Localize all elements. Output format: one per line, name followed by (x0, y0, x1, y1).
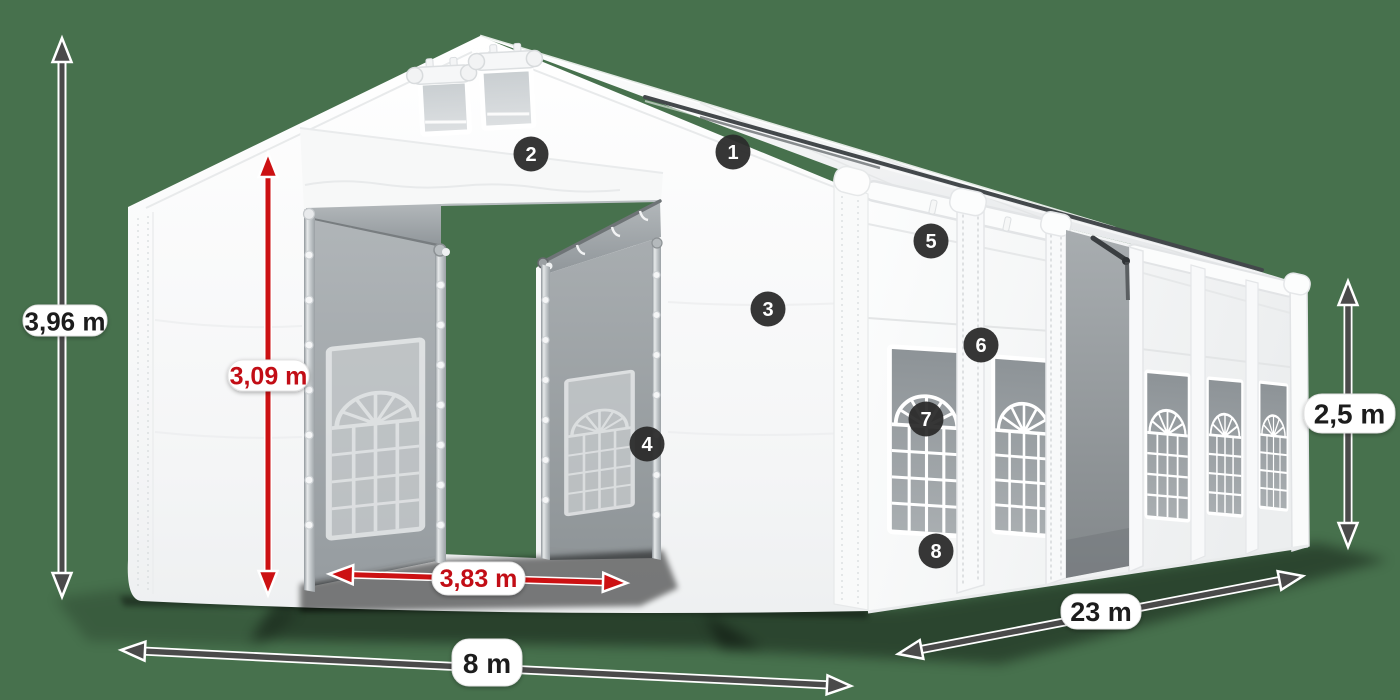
hotspot-badge-3[interactable]: 3 (751, 292, 786, 327)
arrow-left-icon (121, 641, 146, 661)
badge-number: 4 (641, 434, 653, 456)
hotspot-badge-2[interactable]: 2 (514, 137, 549, 172)
front-left-pole (304, 211, 315, 592)
badge-number: 2 (525, 144, 536, 166)
arrow-up-icon (53, 38, 72, 62)
arrow-right-icon (827, 675, 852, 695)
middle-right-pole (541, 264, 550, 560)
dim-label-total-width: 8 m (452, 639, 522, 686)
hotspot-badge-7[interactable]: 7 (909, 402, 944, 437)
badge-number: 5 (925, 231, 936, 253)
badge-number: 7 (920, 409, 931, 431)
curtain-window (566, 371, 632, 515)
arrow-down-icon (53, 573, 72, 597)
dim-label-side-height: 2,5 m (1304, 394, 1395, 433)
dim-side-height: 2,5 m (1304, 281, 1395, 547)
svg-text:3,09 m: 3,09 m (230, 363, 308, 391)
svg-text:23 m: 23 m (1070, 597, 1132, 627)
dim-label-entrance-width: 3,83 m (432, 562, 525, 595)
side-window (889, 347, 963, 537)
arrow-up-icon (1339, 281, 1358, 305)
right-portal (538, 201, 661, 560)
svg-text:8 m: 8 m (463, 648, 511, 679)
hotspot-badge-8[interactable]: 8 (919, 534, 954, 569)
hotspot-badge-5[interactable]: 5 (914, 224, 949, 259)
badge-number: 3 (762, 299, 773, 321)
hotspot-badge-1[interactable]: 1 (716, 135, 751, 170)
svg-text:3,96 m: 3,96 m (25, 307, 106, 337)
dim-label-total-height: 3,96 m (23, 305, 107, 337)
side-window (1208, 378, 1243, 516)
side-window (1260, 382, 1288, 510)
svg-text:2,5 m: 2,5 m (1314, 399, 1386, 430)
front-right-corner-band (831, 164, 872, 610)
front-entrance (300, 201, 678, 612)
svg-text:3,83 m: 3,83 m (440, 565, 518, 593)
badge-number: 8 (930, 541, 941, 563)
hotspot-badge-6[interactable]: 6 (964, 328, 999, 363)
side-window (1146, 371, 1189, 521)
left-portal (306, 204, 441, 586)
dim-label-total-length: 23 m (1061, 594, 1141, 629)
dim-label-entrance-height: 3,09 m (228, 360, 309, 391)
tent-dimension-diagram: 1 2 3 4 5 6 7 8 (0, 0, 1400, 700)
hotspot-badge-4[interactable]: 4 (630, 427, 665, 462)
badge-number: 1 (727, 142, 738, 164)
badge-number: 6 (975, 335, 986, 357)
curtain-window (329, 340, 422, 539)
arrow-down-icon (1339, 523, 1358, 547)
dim-total-height: 3,96 m (23, 38, 107, 597)
side-door-opening (1066, 230, 1130, 578)
